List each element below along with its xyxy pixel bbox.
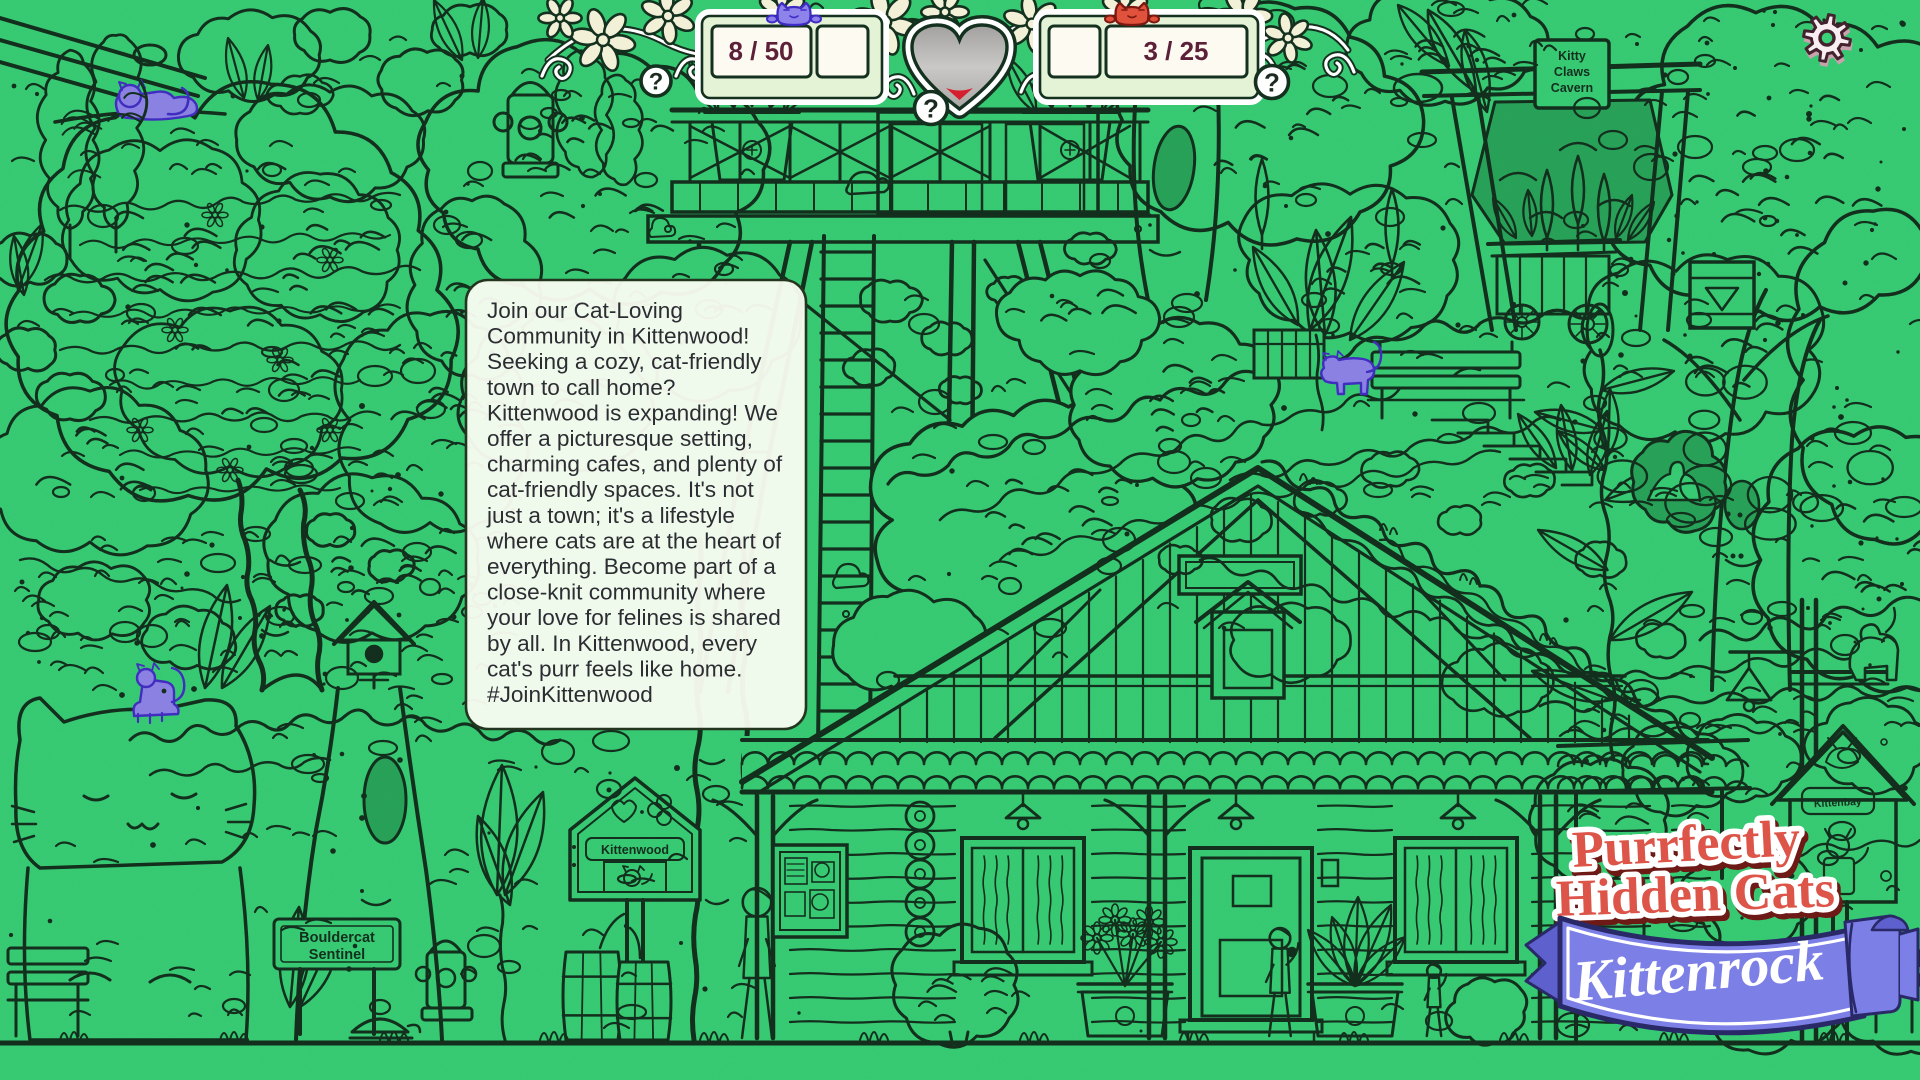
svg-text:just a town; it's a lifestyle: just a town; it's a lifestyle [486,503,735,528]
svg-text:cat-friendly spaces. It's not: cat-friendly spaces. It's not [487,477,754,502]
svg-text:Join our Cat-Loving: Join our Cat-Loving [487,298,683,323]
svg-text:?: ? [649,69,664,96]
svg-text:everything. Become part of a: everything. Become part of a [487,554,776,579]
svg-text:3 / 25: 3 / 25 [1143,36,1208,66]
svg-text:#JoinKittenwood: #JoinKittenwood [487,682,653,707]
svg-text:close-knit community where: close-knit community where [487,580,766,605]
svg-text:8 / 50: 8 / 50 [728,36,793,66]
svg-text:Hidden Cats: Hidden Cats [1555,861,1836,928]
svg-text:cat's purr feels like home.: cat's purr feels like home. [487,656,742,681]
svg-text:offer a picturesque setting,: offer a picturesque setting, [487,426,753,451]
svg-text:town to call home?: town to call home? [487,375,675,400]
svg-text:Seeking a cozy, cat-friendly: Seeking a cozy, cat-friendly [487,349,762,374]
svg-text:?: ? [923,93,939,123]
svg-text:by all. In Kittenwood, every: by all. In Kittenwood, every [487,631,758,656]
svg-text:where cats are at the heart of: where cats are at the heart of [486,528,782,553]
svg-text:?: ? [1264,67,1280,97]
svg-text:Kittenwood is expanding! We: Kittenwood is expanding! We [487,400,778,425]
svg-text:Community in Kittenwood!: Community in Kittenwood! [487,324,749,349]
svg-text:charming cafes, and plenty of: charming cafes, and plenty of [487,452,783,477]
svg-text:your love for felines is share: your love for felines is shared [487,605,781,630]
